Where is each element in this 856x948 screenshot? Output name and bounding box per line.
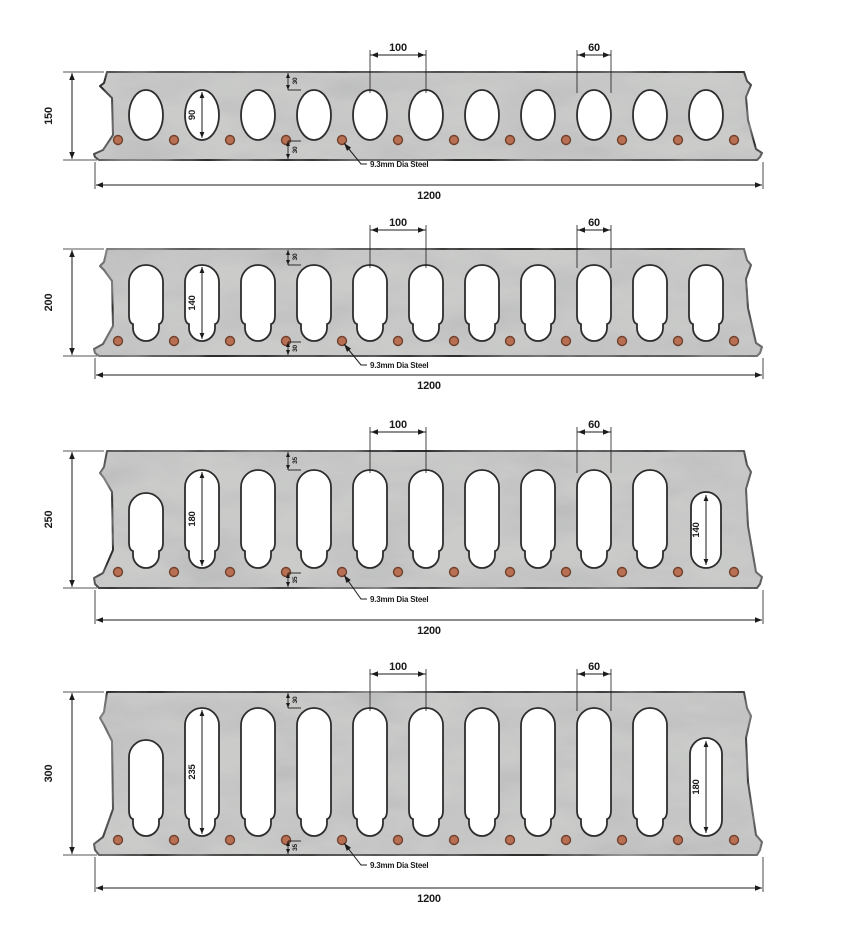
width-dimension: 1200 — [95, 857, 763, 905]
top-cover-label: 30 — [292, 696, 299, 703]
steel-bar-dot — [226, 568, 235, 577]
depth-label: 300 — [43, 765, 55, 783]
drawing-canvas: 1501200100603030909.3mm Dia Steel2001200… — [0, 0, 856, 948]
steel-bar-dot — [282, 836, 291, 845]
steel-bar-dot — [170, 136, 179, 145]
void-keyhole — [409, 708, 443, 836]
dimension-arrow — [69, 580, 75, 587]
dimension-arrow — [69, 250, 75, 257]
steel-label: 9.3mm Dia Steel — [370, 861, 428, 870]
dimension-arrow — [69, 348, 75, 355]
void-oval — [353, 90, 387, 140]
void-keyhole — [633, 470, 667, 568]
void-keyhole — [577, 265, 611, 341]
dimension-arrow — [371, 671, 378, 677]
steel-bar-dot — [114, 136, 123, 145]
steel-bar-dot — [394, 136, 403, 145]
top-cover-label: 35 — [292, 457, 299, 464]
steel-label: 9.3mm Dia Steel — [370, 160, 428, 169]
void-keyhole — [577, 470, 611, 568]
steel-bar-dot — [506, 568, 515, 577]
void-height-label: 90 — [187, 110, 198, 120]
void-keyhole — [297, 470, 331, 568]
void-width-label: 60 — [588, 217, 600, 229]
steel-bar-dot — [450, 337, 459, 346]
void-height-label: 180 — [187, 511, 198, 526]
depth-label: 200 — [43, 294, 55, 312]
void-keyhole — [241, 708, 275, 836]
top-cover-label: 30 — [292, 253, 299, 260]
void-keyhole — [129, 265, 163, 341]
dimension-arrow — [418, 227, 425, 233]
void-keyhole — [633, 708, 667, 836]
steel-bar-dot — [114, 337, 123, 346]
steel-bar-dot — [226, 337, 235, 346]
dimension-arrow — [578, 52, 585, 58]
top-cover-label: 30 — [292, 77, 299, 84]
steel-bar-dot — [674, 136, 683, 145]
void-width-label: 60 — [588, 42, 600, 54]
pitch-label: 100 — [389, 419, 407, 431]
section-150: 1501200100603030909.3mm Dia Steel — [43, 42, 763, 202]
void-oval — [689, 90, 723, 140]
bottom-cover-label: 30 — [292, 146, 299, 153]
width-label: 1200 — [417, 380, 441, 392]
width-dimension: 1200 — [95, 358, 763, 392]
steel-bar-dot — [282, 568, 291, 577]
void-oval — [633, 90, 667, 140]
void-keyhole — [577, 708, 611, 836]
void-width-label: 60 — [588, 661, 600, 673]
steel-bar-dot — [618, 568, 627, 577]
void-keyhole — [353, 265, 387, 341]
void-keyhole — [633, 265, 667, 341]
steel-bar-dot — [282, 337, 291, 346]
steel-bar-dot — [562, 568, 571, 577]
dimension-arrow — [69, 452, 75, 459]
steel-bar-dot — [226, 136, 235, 145]
steel-bar-dot — [674, 337, 683, 346]
void-keyhole — [409, 470, 443, 568]
end-void-height-label: 180 — [691, 779, 702, 794]
steel-label: 9.3mm Dia Steel — [370, 595, 428, 604]
steel-bar-dot — [730, 337, 739, 346]
pitch-label: 100 — [389, 42, 407, 54]
steel-bar-dot — [730, 568, 739, 577]
void-keyhole — [465, 265, 499, 341]
steel-bar-dot — [450, 136, 459, 145]
dimension-arrow — [371, 227, 378, 233]
dimension-arrow — [603, 671, 610, 677]
steel-bar-dot — [506, 836, 515, 845]
steel-bar-dot — [730, 136, 739, 145]
steel-bar-dot — [394, 836, 403, 845]
steel-bar-dot — [170, 337, 179, 346]
void-keyhole — [353, 708, 387, 836]
bottom-cover-label: 35 — [292, 576, 299, 583]
dimension-arrow — [578, 671, 585, 677]
dimension-arrow — [96, 885, 103, 891]
void-height-label: 140 — [187, 295, 198, 310]
void-keyhole-short — [129, 740, 163, 836]
void-oval — [129, 90, 163, 140]
void-keyhole-short — [129, 493, 163, 568]
dimension-arrow — [603, 227, 610, 233]
steel-bar-dot — [506, 136, 515, 145]
void-height-label: 235 — [187, 763, 198, 779]
depth-label: 250 — [43, 511, 55, 529]
dimension-arrow — [418, 52, 425, 58]
steel-bar-dot — [394, 337, 403, 346]
dimension-arrow — [96, 617, 103, 623]
void-keyhole — [465, 470, 499, 568]
depth-label: 150 — [43, 107, 55, 125]
steel-bar-dot — [674, 568, 683, 577]
steel-bar-dot — [562, 836, 571, 845]
steel-bar-dot — [282, 136, 291, 145]
dimension-arrow — [69, 693, 75, 700]
steel-bar-dot — [338, 337, 347, 346]
void-keyhole — [689, 265, 723, 341]
steel-bar-dot — [226, 836, 235, 845]
void-keyhole — [297, 708, 331, 836]
end-void-height-label: 140 — [691, 522, 702, 537]
void-width-label: 60 — [588, 419, 600, 431]
void-keyhole — [521, 265, 555, 341]
void-oval — [465, 90, 499, 140]
bottom-cover-label: 30 — [292, 345, 299, 352]
steel-bar-dot — [338, 568, 347, 577]
dimension-arrow — [603, 52, 610, 58]
steel-bar-dot — [618, 136, 627, 145]
section-300: 30012001006030352351809.3mm Dia Steel — [43, 661, 763, 905]
hollow-core-sections-drawing: 1501200100603030909.3mm Dia Steel2001200… — [0, 0, 856, 948]
void-oval — [297, 90, 331, 140]
pitch-label: 100 — [389, 661, 407, 673]
steel-label: 9.3mm Dia Steel — [370, 361, 428, 370]
width-label: 1200 — [417, 625, 441, 637]
steel-bar-dot — [730, 836, 739, 845]
dimension-arrow — [603, 429, 610, 435]
steel-bar-dot — [562, 337, 571, 346]
dimension-arrow — [418, 429, 425, 435]
void-oval — [409, 90, 443, 140]
steel-bar-dot — [114, 836, 123, 845]
dimension-arrow — [578, 227, 585, 233]
void-oval — [241, 90, 275, 140]
width-dimension: 1200 — [95, 590, 763, 637]
void-oval — [521, 90, 555, 140]
dimension-arrow — [69, 847, 75, 854]
section-200: 20012001006030301409.3mm Dia Steel — [43, 217, 763, 392]
dimension-arrow — [96, 372, 103, 378]
steel-bar-dot — [506, 337, 515, 346]
dimension-arrow — [418, 671, 425, 677]
steel-bar-dot — [450, 836, 459, 845]
steel-bar-dot — [618, 337, 627, 346]
steel-bar-dot — [114, 568, 123, 577]
dimension-arrow — [755, 372, 762, 378]
void-keyhole — [521, 708, 555, 836]
depth-dimension: 300 — [43, 692, 104, 855]
void-keyhole — [241, 470, 275, 568]
steel-bar-dot — [618, 836, 627, 845]
steel-bar-dot — [170, 836, 179, 845]
void-keyhole — [353, 470, 387, 568]
steel-bar-dot — [674, 836, 683, 845]
dimension-arrow — [69, 73, 75, 80]
steel-bar-dot — [450, 568, 459, 577]
void-keyhole — [409, 265, 443, 341]
dimension-arrow — [69, 152, 75, 159]
dimension-arrow — [755, 885, 762, 891]
pitch-label: 100 — [389, 217, 407, 229]
void-oval — [577, 90, 611, 140]
depth-dimension: 250 — [43, 451, 104, 588]
steel-bar-dot — [338, 836, 347, 845]
bottom-cover-label: 35 — [292, 844, 299, 851]
steel-bar-dot — [562, 136, 571, 145]
void-keyhole — [297, 265, 331, 341]
steel-bar-dot — [338, 136, 347, 145]
void-keyhole — [465, 708, 499, 836]
void-keyhole — [241, 265, 275, 341]
depth-dimension: 150 — [43, 72, 104, 160]
dimension-arrow — [371, 52, 378, 58]
dimension-arrow — [371, 429, 378, 435]
dimension-arrow — [96, 182, 103, 188]
section-250: 25012001006035351801409.3mm Dia Steel — [43, 419, 763, 637]
width-label: 1200 — [417, 190, 441, 202]
dimension-arrow — [755, 617, 762, 623]
width-label: 1200 — [417, 893, 441, 905]
steel-bar-dot — [394, 568, 403, 577]
dimension-arrow — [755, 182, 762, 188]
width-dimension: 1200 — [95, 162, 763, 202]
steel-bar-dot — [170, 568, 179, 577]
dimension-arrow — [578, 429, 585, 435]
void-keyhole — [521, 470, 555, 568]
depth-dimension: 200 — [43, 249, 104, 356]
